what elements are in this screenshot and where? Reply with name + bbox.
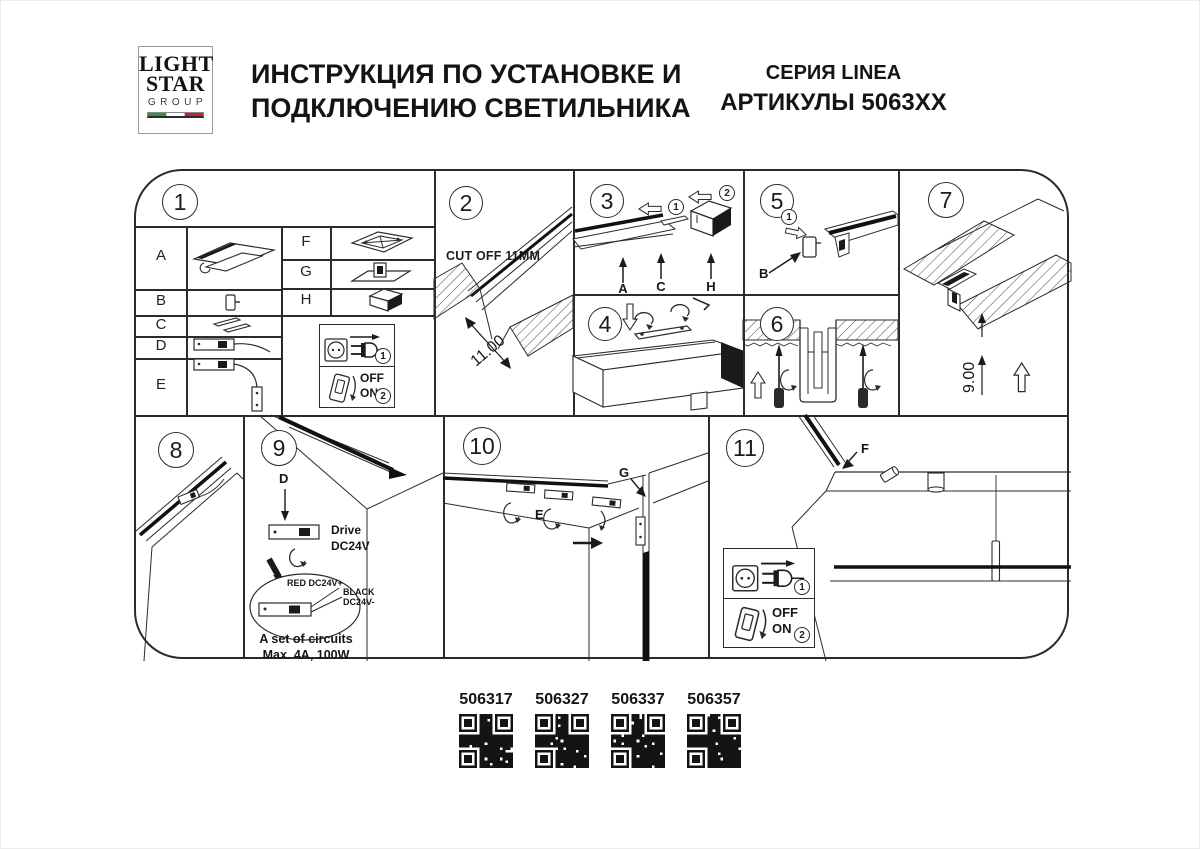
power-steps-box: 1 OFF ON 2 (723, 548, 815, 648)
label-h: H (706, 279, 715, 294)
panel-number: 9 (261, 430, 297, 466)
step-number: 2 (794, 627, 810, 643)
switch-icon (730, 605, 770, 645)
label-g: G (619, 465, 629, 480)
table-line (136, 289, 281, 291)
label-arrow (657, 253, 665, 279)
spot-light (880, 466, 900, 483)
label-e: E (535, 507, 544, 522)
part-letter-c: C (136, 316, 186, 333)
part-letter-g: G (281, 263, 331, 280)
panel-2-cutoff: 2 CUT OFF 11MM (434, 171, 573, 415)
part-letter-d: D (136, 337, 186, 354)
wired-connector (259, 603, 311, 616)
off-label: OFF (360, 371, 384, 386)
qr-item: 506317 (448, 691, 524, 768)
qr-item: 506337 (600, 691, 676, 768)
lightstar-logo: LIGHT STAR GROUP (138, 46, 213, 134)
series-label: СЕРИЯ LINEA (726, 62, 941, 85)
panel-number: 3 (590, 184, 624, 218)
qr-item: 506357 (676, 691, 752, 768)
plug-step: 1 (320, 325, 394, 366)
part-c-strips-icon (212, 316, 254, 334)
part-letter-f: F (281, 233, 331, 250)
part-a-profile-icon (190, 233, 278, 285)
part-g-fixture-icon (348, 259, 414, 285)
clip-part (803, 237, 816, 257)
qr-code (687, 714, 741, 768)
title-line-2: ПОДКЛЮЧЕНИЮ СВЕТИЛЬНИКА (251, 91, 771, 125)
step-number: 1 (794, 579, 810, 595)
label-arrow (631, 479, 646, 497)
step-number: 1 (375, 348, 391, 364)
qr-code (459, 714, 513, 768)
panel-1-parts: 1 A B C D E F G H (136, 171, 434, 415)
label-arrow (619, 257, 627, 283)
instruction-grid: 1 A B C D E F G H (134, 169, 1069, 659)
panel-number: 11 (726, 429, 764, 467)
circuits-label-2: Max. 4A, 100W (226, 647, 386, 663)
step-number: 2 (375, 388, 391, 404)
label-f: F (861, 441, 869, 456)
push-arrow (573, 537, 603, 549)
article-number: 506337 (611, 691, 664, 709)
vertical-connector (636, 517, 645, 545)
cylinder-light (928, 473, 944, 492)
table-line (281, 226, 283, 415)
switch-step: OFF ON 2 (724, 598, 814, 647)
screwdriver-icon (858, 344, 881, 408)
part-f-frame-icon (350, 228, 414, 256)
part-b-clip-icon (224, 293, 242, 313)
label-d: D (279, 471, 288, 486)
panel-7-illustration: 9.00 (898, 171, 1071, 415)
part-letter-h: H (281, 291, 331, 308)
joint-connector (544, 490, 572, 500)
open-arrow-up-icon (1014, 363, 1029, 392)
rotation-arrow-icon (635, 313, 653, 330)
corner-connector (691, 201, 731, 236)
switch-step: OFF ON 2 (320, 366, 394, 407)
wire-black-label-1: BLACK (343, 587, 375, 597)
label-arrow (707, 253, 715, 279)
label-b: B (759, 266, 768, 281)
plug-step: 1 (724, 549, 814, 598)
part-letter-e: E (136, 376, 186, 393)
logo-word-group: GROUP (139, 97, 212, 108)
article-number: 506327 (535, 691, 588, 709)
table-line (186, 226, 188, 415)
panel-number: 1 (162, 184, 198, 220)
open-arrow-up-icon (751, 372, 765, 398)
off-label: OFF (772, 605, 798, 621)
switch-icon (325, 372, 359, 406)
open-arrow-icon (639, 203, 661, 215)
joint-connector (506, 483, 534, 493)
panel-number: 2 (449, 186, 483, 220)
drive-label-2: DC24V (331, 539, 370, 555)
instruction-sheet: LIGHT STAR GROUP ИНСТРУКЦИЯ ПО УСТАНОВКЕ… (0, 0, 1200, 849)
dim-11: 11.00 (468, 332, 509, 370)
track-channel (800, 320, 836, 402)
italian-flag-icon (147, 112, 204, 118)
panel-number: 6 (760, 307, 794, 341)
article-number: 506357 (687, 691, 740, 709)
page-title: ИНСТРУКЦИЯ ПО УСТАНОВКЕ И ПОДКЛЮЧЕНИЮ СВ… (251, 57, 771, 125)
qr-code (611, 714, 665, 768)
panel-number: 10 (463, 427, 501, 465)
rotation-arrow-icon (671, 305, 689, 322)
article-number: 506317 (459, 691, 512, 709)
part-h-corner-icon (364, 286, 408, 314)
label-arrow (769, 252, 801, 273)
panel-3-endcap: 3 1 2 (573, 171, 743, 294)
table-line (281, 288, 434, 290)
panel-11-result: 11 F (708, 415, 1071, 661)
qr-item: 506327 (524, 691, 600, 768)
step-number: 1 (668, 199, 684, 215)
rotation-arrow-icon (504, 503, 521, 523)
part-d-connector-icon (192, 335, 276, 355)
dim-9: 9.00 (961, 362, 978, 393)
logo-word-star: STAR (139, 74, 212, 94)
step-number: 1 (781, 209, 797, 225)
wire-red-label: RED DC24V+ (287, 578, 343, 588)
panel-number: 8 (158, 432, 194, 468)
screwdriver-icon (774, 344, 797, 408)
step-number: 2 (719, 185, 735, 201)
articles-label: АРТИКУЛЫ 5063XX (706, 89, 961, 117)
title-line-1: ИНСТРУКЦИЯ ПО УСТАНОВКЕ И (251, 57, 771, 91)
corner-feed-connector (592, 497, 621, 508)
panel-7-recess-depth: 7 (898, 171, 1071, 415)
label-arrow (281, 489, 289, 521)
qr-code-row: 506317 506327 506337 506357 (448, 691, 752, 768)
label-c: C (656, 279, 666, 294)
part-letter-a: A (136, 247, 186, 264)
panel-4-screws: 4 (573, 294, 743, 415)
power-steps-box: 1 OFF ON 2 (319, 324, 395, 408)
panel-6-crosssection: 6 (743, 294, 898, 415)
rotation-arrow-icon (544, 509, 561, 529)
part-e-corner-connector-icon (192, 357, 276, 413)
panel-number: 4 (588, 307, 622, 341)
panel-5-clip: 5 1 B (743, 171, 898, 294)
wire-black-label-2: DC24V- (343, 597, 375, 607)
circuits-label-1: A set of circuits (226, 631, 386, 647)
rotation-arrow-icon (290, 549, 307, 567)
qr-code (535, 714, 589, 768)
drive-label-1: Drive (331, 523, 370, 539)
panel-8-installed: 8 (136, 415, 243, 661)
panel-10-corner: 10 (443, 415, 708, 661)
panel-number: 7 (928, 182, 964, 218)
panel-9-driver: 9 D (243, 415, 443, 661)
part-letter-b: B (136, 292, 186, 309)
